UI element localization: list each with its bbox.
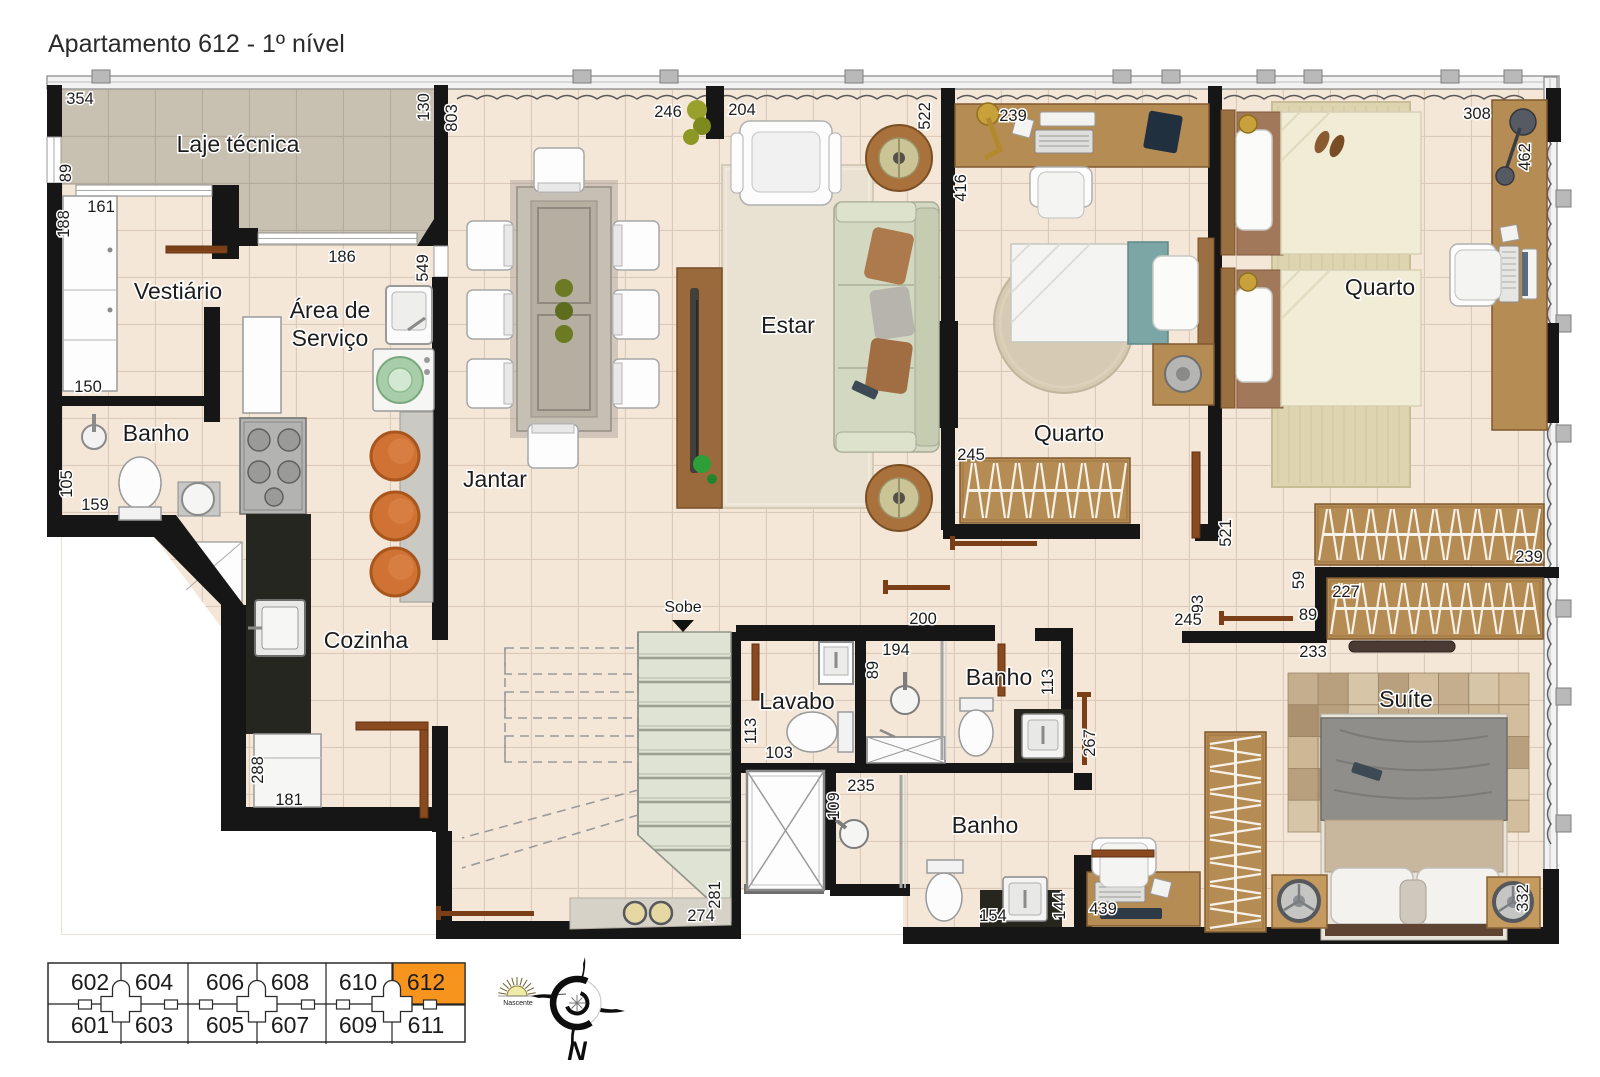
svg-text:Quarto: Quarto — [1034, 420, 1104, 446]
svg-text:611: 611 — [408, 1012, 445, 1038]
svg-text:354: 354 — [66, 90, 94, 108]
svg-text:Sobe: Sobe — [664, 599, 701, 616]
svg-text:105: 105 — [58, 470, 76, 498]
svg-text:154: 154 — [979, 907, 1007, 925]
svg-text:521: 521 — [1217, 519, 1235, 547]
svg-text:227: 227 — [1332, 583, 1360, 601]
svg-text:607: 607 — [271, 1012, 309, 1038]
svg-text:Estar: Estar — [761, 312, 815, 338]
svg-text:200: 200 — [909, 610, 937, 628]
svg-text:Lavabo: Lavabo — [759, 688, 834, 714]
svg-text:332: 332 — [1514, 884, 1532, 912]
svg-text:Apartamento 612 - 1º nível: Apartamento 612 - 1º nível — [48, 30, 345, 58]
svg-text:604: 604 — [135, 969, 174, 995]
svg-text:89: 89 — [57, 164, 75, 182]
svg-text:Banho: Banho — [952, 812, 1019, 838]
svg-text:308: 308 — [1463, 105, 1491, 123]
svg-text:233: 233 — [1299, 643, 1327, 661]
svg-text:246: 246 — [654, 103, 682, 121]
svg-text:Nascente: Nascente — [503, 1000, 533, 1007]
svg-text:109: 109 — [825, 792, 843, 820]
svg-text:Suíte: Suíte — [1379, 686, 1433, 712]
svg-text:281: 281 — [706, 881, 724, 909]
svg-text:113: 113 — [1039, 669, 1057, 695]
svg-text:603: 603 — [135, 1012, 173, 1038]
svg-text:462: 462 — [1516, 143, 1534, 171]
svg-text:89: 89 — [1299, 606, 1317, 624]
svg-text:186: 186 — [328, 248, 356, 266]
svg-text:612: 612 — [407, 969, 445, 995]
svg-text:609: 609 — [339, 1012, 377, 1038]
svg-text:Vestiário: Vestiário — [134, 278, 222, 304]
svg-text:245: 245 — [1174, 611, 1202, 629]
svg-text:605: 605 — [206, 1012, 244, 1038]
svg-text:239: 239 — [1515, 548, 1543, 566]
svg-text:Área de: Área de — [290, 297, 371, 323]
svg-text:235: 235 — [847, 777, 875, 795]
svg-text:522: 522 — [916, 102, 934, 130]
svg-text:204: 204 — [728, 101, 756, 119]
svg-text:150: 150 — [74, 378, 102, 396]
svg-text:549: 549 — [414, 254, 432, 282]
svg-text:Cozinha: Cozinha — [324, 627, 409, 653]
svg-text:N: N — [567, 1036, 587, 1066]
svg-text:416: 416 — [952, 174, 970, 202]
svg-text:Jantar: Jantar — [463, 466, 527, 492]
svg-text:239: 239 — [999, 107, 1027, 125]
svg-text:161: 161 — [87, 198, 115, 216]
svg-text:803: 803 — [443, 104, 461, 132]
svg-text:601: 601 — [71, 1012, 109, 1038]
svg-text:59: 59 — [1290, 571, 1308, 589]
svg-text:606: 606 — [206, 969, 244, 995]
svg-text:103: 103 — [765, 744, 793, 762]
svg-text:608: 608 — [271, 969, 309, 995]
svg-text:Laje técnica: Laje técnica — [177, 131, 300, 157]
svg-text:Banho: Banho — [966, 664, 1033, 690]
svg-text:Quarto: Quarto — [1345, 274, 1415, 300]
svg-text:89: 89 — [864, 661, 882, 679]
svg-text:602: 602 — [71, 969, 109, 995]
svg-text:194: 194 — [882, 641, 910, 659]
svg-text:439: 439 — [1089, 900, 1117, 918]
svg-text:159: 159 — [81, 496, 109, 514]
svg-text:188: 188 — [55, 210, 73, 238]
svg-text:610: 610 — [339, 969, 377, 995]
svg-text:181: 181 — [275, 791, 303, 809]
svg-text:267: 267 — [1081, 729, 1099, 757]
svg-text:144: 144 — [1051, 892, 1069, 920]
svg-text:Serviço: Serviço — [292, 325, 369, 351]
svg-text:245: 245 — [957, 446, 985, 464]
svg-text:Banho: Banho — [123, 420, 190, 446]
svg-text:288: 288 — [249, 756, 267, 784]
svg-text:113: 113 — [742, 718, 760, 744]
svg-text:130: 130 — [415, 93, 433, 121]
